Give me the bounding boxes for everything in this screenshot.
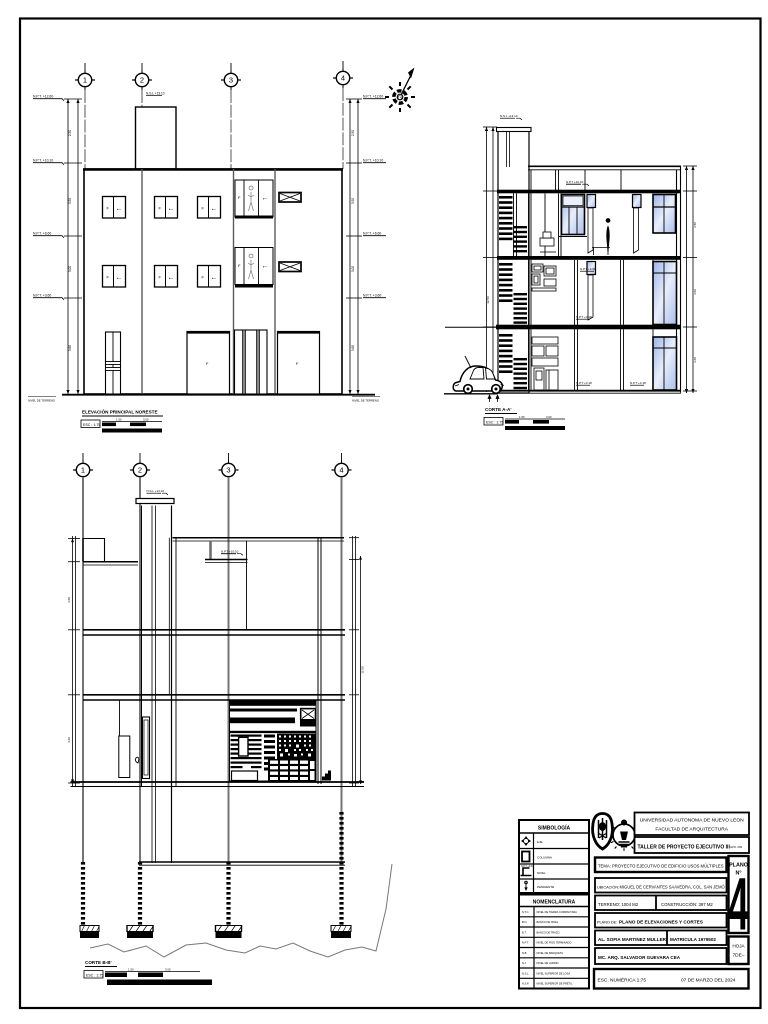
svg-text:3.00: 3.00 <box>68 266 72 272</box>
svg-text:4: 4 <box>339 466 343 475</box>
svg-text:NOMENCLATURA: NOMENCLATURA <box>533 900 576 906</box>
svg-text:3.60: 3.60 <box>693 357 697 363</box>
svg-text:ELEVACIÓN PRINCIPAL NORESTE: ELEVACIÓN PRINCIPAL NORESTE <box>82 408 158 415</box>
svg-text:N.P.T. +10.10: N.P.T. +10.10 <box>363 159 383 163</box>
svg-text:TERRENO: 1004 M2: TERRENO: 1004 M2 <box>598 902 639 907</box>
svg-text:2: 2 <box>140 76 144 85</box>
svg-text:N.P.T. +6.60: N.P.T. +6.60 <box>33 232 51 236</box>
svg-text:3.00: 3.00 <box>143 418 149 422</box>
svg-text:N.P.T +10.10: N.P.T +10.10 <box>566 180 584 184</box>
svg-text:N.S.L +13.10: N.S.L +13.10 <box>146 92 165 96</box>
svg-text:N.S.P.: N.S.P. <box>522 982 529 986</box>
svg-text:TALLER DE PROYECTO EJECUTIVO I: TALLER DE PROYECTO EJECUTIVO III <box>638 844 731 850</box>
svg-text:←: ← <box>262 263 269 270</box>
svg-text:PLANO DE ELEVACIONES Y CORTES: PLANO DE ELEVACIONES Y CORTES <box>619 920 703 925</box>
svg-text:ESC. NUMÉRICA 1:75: ESC. NUMÉRICA 1:75 <box>598 976 647 983</box>
svg-text:FACULTAD DE ARQUITECTURA: FACULTAD DE ARQUITECTURA <box>655 827 728 833</box>
svg-text:12.50: 12.50 <box>361 666 365 674</box>
svg-text:N.J.: N.J. <box>522 961 527 965</box>
svg-text:NIVEL DE TIERRA COMPACTADA: NIVEL DE TIERRA COMPACTADA <box>537 910 578 914</box>
svg-text:BANCO DE TRAZO: BANCO DE TRAZO <box>537 930 560 934</box>
svg-text:COLUMNA: COLUMNA <box>537 856 552 860</box>
svg-text:4: 4 <box>341 74 345 83</box>
svg-text:ESC : 1:75: ESC : 1:75 <box>486 420 503 424</box>
svg-text:N.P.T +0.18: N.P.T +0.18 <box>630 381 646 385</box>
svg-text:EJE: EJE <box>537 840 543 844</box>
svg-text:3.60: 3.60 <box>351 345 355 351</box>
svg-text:NIVEL DE PISO TERMINADO: NIVEL DE PISO TERMINADO <box>537 941 572 945</box>
svg-text:PENDIENTE: PENDIENTE <box>537 885 554 889</box>
svg-text:3.60: 3.60 <box>67 737 71 743</box>
svg-text:ESC : 1:75: ESC : 1:75 <box>86 973 103 977</box>
svg-text:1.50: 1.50 <box>116 418 122 422</box>
svg-text:3.00: 3.00 <box>546 415 552 419</box>
svg-text:←: ← <box>262 195 269 202</box>
svg-text:NIVEL DE JARDIN: NIVEL DE JARDIN <box>537 961 559 965</box>
svg-text:PLANO DE:: PLANO DE: <box>597 920 617 924</box>
svg-text:N.P.T +10.10: N.P.T +10.10 <box>221 550 239 554</box>
svg-text:MIGUEL DE CERVANTES SAAVEDRA,: MIGUEL DE CERVANTES SAAVEDRA, COL. SAN J… <box>620 884 725 889</box>
svg-text:HOJA: HOJA <box>732 944 745 949</box>
svg-text:1: 1 <box>83 76 87 85</box>
svg-text:NIVEL: NIVEL <box>537 871 546 875</box>
svg-text:3: 3 <box>229 76 233 85</box>
svg-text:N.P.T. +3.60: N.P.T. +3.60 <box>363 294 381 298</box>
svg-text:AL. SOFIA MARTINEZ MULLER: AL. SOFIA MARTINEZ MULLER <box>598 937 667 942</box>
svg-text:SIMBOLOGÍA: SIMBOLOGÍA <box>538 824 571 832</box>
svg-text:N.P.T +0.18: N.P.T +0.18 <box>576 315 592 319</box>
svg-text:NIVEL DE TERRENO: NIVEL DE TERRENO <box>352 399 380 403</box>
svg-text:3.00: 3.00 <box>351 266 355 272</box>
svg-text:N.P.T. +3.60: N.P.T. +3.60 <box>33 294 51 298</box>
svg-text:MATRICULA 1979502: MATRICULA 1979502 <box>670 937 716 942</box>
svg-text:3.60: 3.60 <box>68 345 72 351</box>
svg-text:N.P.T +0.00: N.P.T +0.00 <box>521 865 534 868</box>
svg-text:2.50: 2.50 <box>68 130 72 136</box>
svg-text:3.00: 3.00 <box>165 968 171 972</box>
svg-text:NIVEL DE TERRENO: NIVEL DE TERRENO <box>28 399 56 403</box>
svg-text:B.T.: B.T. <box>522 930 527 934</box>
svg-text:TEMA: PROYECTO EJECUTIVO DE ED: TEMA: PROYECTO EJECUTIVO DE EDIFICIO USO… <box>598 864 724 869</box>
svg-text:N.B.: N.B. <box>522 951 527 955</box>
svg-text:2.50: 2.50 <box>351 130 355 136</box>
svg-text:3.50: 3.50 <box>68 198 72 204</box>
svg-text:BANCO DE NIVEL: BANCO DE NIVEL <box>537 920 559 924</box>
svg-text:1.50: 1.50 <box>519 415 525 419</box>
svg-text:N.P.T. +6.60: N.P.T. +6.60 <box>363 232 381 236</box>
svg-text:4: 4 <box>728 864 749 946</box>
svg-text:ESC : 1:75: ESC : 1:75 <box>83 423 100 427</box>
svg-text:CORTE B-B': CORTE B-B' <box>85 960 112 965</box>
svg-text:3: 3 <box>226 466 230 475</box>
svg-text:12.50: 12.50 <box>486 296 490 304</box>
svg-text:1: 1 <box>81 466 85 475</box>
svg-text:G: G <box>398 96 403 102</box>
svg-text:N.S.L +13.10: N.S.L +13.10 <box>500 114 518 118</box>
svg-text:NIVEL DE BANQUETA: NIVEL DE BANQUETA <box>537 951 564 955</box>
svg-text:N.P.T +3.60: N.P.T +3.60 <box>580 267 596 271</box>
svg-text:UNIVERSIDAD AUTONOMA DE NUEVO: UNIVERSIDAD AUTONOMA DE NUEVO LEON <box>640 818 744 824</box>
svg-text:N.S.L.: N.S.L. <box>522 971 529 975</box>
svg-text:UBICACIÓN:: UBICACIÓN: <box>597 884 619 889</box>
svg-text:N.P.T.: N.P.T. <box>522 941 529 945</box>
svg-text:N.P.T. +10.10: N.P.T. +10.10 <box>33 159 53 163</box>
svg-text:N.P.T. +12.60: N.P.T. +12.60 <box>33 95 53 99</box>
svg-text:B.N.: B.N. <box>522 920 527 924</box>
svg-text:3.50: 3.50 <box>67 597 71 603</box>
svg-text:7DE–: 7DE– <box>733 953 745 959</box>
svg-text:07 DE MARZO DEL 2024: 07 DE MARZO DEL 2024 <box>681 977 736 983</box>
svg-text:N.T.C.: N.T.C. <box>522 910 529 914</box>
svg-text:CORTE A-A': CORTE A-A' <box>485 407 511 412</box>
svg-text:1.50: 1.50 <box>128 968 134 972</box>
svg-text:NIVEL SUPERIOR DE LOSA: NIVEL SUPERIOR DE LOSA <box>537 971 571 975</box>
svg-text:3.00: 3.00 <box>693 289 697 295</box>
svg-text:2: 2 <box>138 466 142 475</box>
svg-text:NIVEL SUPERIOR DE PRETIL: NIVEL SUPERIOR DE PRETIL <box>537 982 573 986</box>
svg-text:MC. ARQ. SALVADOR GUEVARA CEA: MC. ARQ. SALVADOR GUEVARA CEA <box>598 955 681 960</box>
svg-text:3.50: 3.50 <box>351 198 355 204</box>
svg-text:N.P.T +0.18: N.P.T +0.18 <box>576 381 592 385</box>
svg-text:N.S.L +13.10: N.S.L +13.10 <box>147 489 165 493</box>
svg-text:N.P.T. +12.60: N.P.T. +12.60 <box>363 95 383 99</box>
svg-text:GPO. 009: GPO. 009 <box>730 845 742 849</box>
svg-text:3.50: 3.50 <box>693 222 697 228</box>
svg-text:CONSTRUCCIÓN: 397 M2: CONSTRUCCIÓN: 397 M2 <box>661 902 713 907</box>
